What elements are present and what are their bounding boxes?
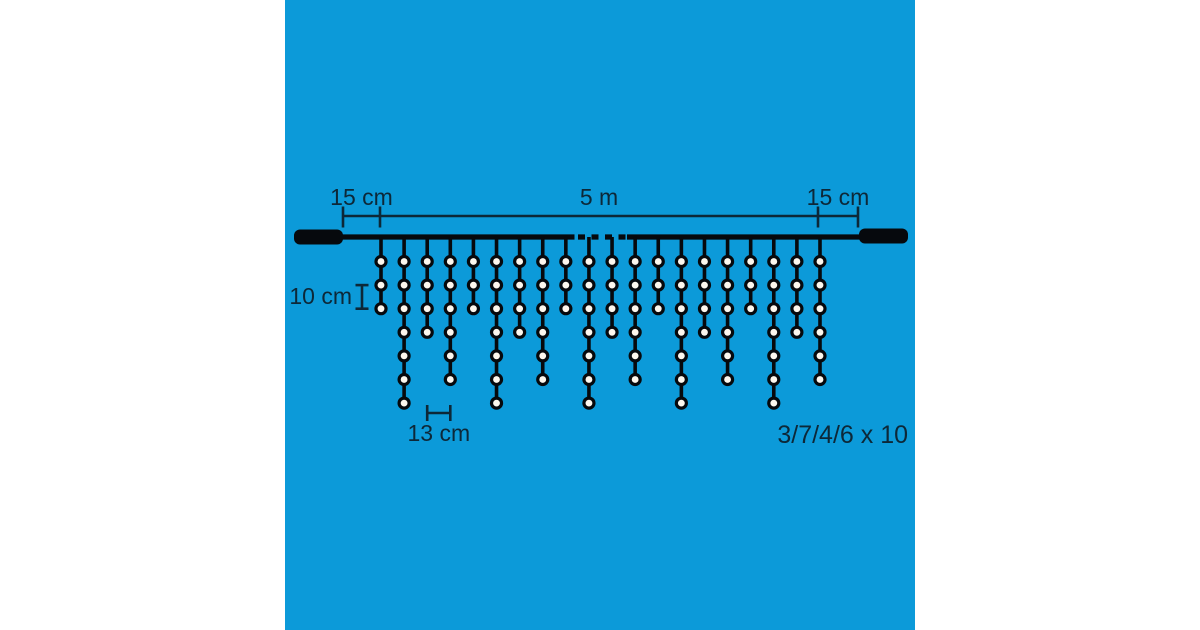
led-bulb-glow [401,282,408,289]
led-bulb-glow [447,282,454,289]
led-bulb-glow [378,258,385,265]
led-bulb-glow [470,258,477,265]
led-bulb-glow [655,282,662,289]
label-drop-spacing: 13 cm [407,420,470,446]
led-bulb-glow [770,282,777,289]
led-bulb-glow [493,305,500,312]
light-drop [675,237,688,410]
led-bulb-glow [470,305,477,312]
led-bulb-glow [817,353,824,360]
led-bulb-glow [493,282,500,289]
led-bulb-glow [586,258,593,265]
light-drop [767,237,780,410]
label-left-margin: 15 cm [330,184,393,210]
led-bulb-glow [793,329,800,336]
led-bulb-glow [632,376,639,383]
led-bulb-glow [678,353,685,360]
led-bulb-glow [586,376,593,383]
led-bulb-glow [817,329,824,336]
led-bulb-glow [516,305,523,312]
led-bulb-glow [562,305,569,312]
led-bulb-glow [447,305,454,312]
bulb-spacing-bracket: 10 cm [289,283,368,309]
led-bulb-glow [793,305,800,312]
led-bulb-glow [539,305,546,312]
led-bulb-glow [747,258,754,265]
led-bulb-glow [817,376,824,383]
led-bulb-glow [539,353,546,360]
led-bulb-glow [401,258,408,265]
led-bulb-glow [516,258,523,265]
light-drop [513,237,526,339]
led-bulb-glow [678,305,685,312]
light-drop [444,237,457,386]
light-drop [698,237,711,339]
diagram-panel: 15 cm 5 m 15 cm 10 cm [285,0,915,630]
led-bulb-glow [424,282,431,289]
led-bulb-glow [562,282,569,289]
led-bulb-glow [378,282,385,289]
led-bulb-glow [447,329,454,336]
right-plug [859,229,908,244]
light-drop [582,237,595,410]
led-bulb-glow [609,329,616,336]
led-bulb-glow [817,305,824,312]
led-bulb-glow [793,258,800,265]
led-bulb-glow [470,282,477,289]
led-bulb-glow [793,282,800,289]
led-bulb-glow [701,305,708,312]
led-bulb-glow [632,329,639,336]
light-drop [467,237,480,315]
led-bulb-glow [724,305,731,312]
led-bulb-glow [539,376,546,383]
led-bulb-glow [770,353,777,360]
led-bulb-glow [770,329,777,336]
led-bulb-glow [701,282,708,289]
icicle-lights-diagram: 15 cm 5 m 15 cm 10 cm [285,0,915,630]
left-plug [294,230,343,245]
led-bulb-glow [817,282,824,289]
page: 15 cm 5 m 15 cm 10 cm [0,0,1200,630]
led-bulb-glow [493,353,500,360]
led-bulb-glow [586,305,593,312]
led-bulb-glow [586,282,593,289]
led-bulb-glow [701,258,708,265]
light-drop [744,237,757,315]
led-bulb-glow [632,353,639,360]
light-drop [398,237,411,410]
light-drop [813,237,826,386]
led-bulb-glow [678,376,685,383]
light-drop [790,237,803,339]
light-drop [421,237,434,339]
led-bulb-glow [424,305,431,312]
cable [294,229,908,245]
light-drop [536,237,549,386]
led-bulb-glow [586,353,593,360]
led-bulb-glow [562,258,569,265]
led-bulb-glow [724,353,731,360]
led-bulb-glow [586,400,593,407]
led-bulb-glow [770,376,777,383]
led-bulb-glow [586,329,593,336]
light-drop [490,237,503,410]
led-bulb-glow [401,376,408,383]
drop-spacing-bracket: 13 cm [407,405,470,446]
led-bulb-glow [424,329,431,336]
label-right-margin: 15 cm [807,184,870,210]
led-bulb-glow [678,329,685,336]
light-drop [605,237,618,339]
led-bulb-glow [539,329,546,336]
led-bulb-glow [632,305,639,312]
led-bulb-glow [655,305,662,312]
led-bulb-glow [539,282,546,289]
led-bulb-glow [724,258,731,265]
led-bulb-glow [378,305,385,312]
led-bulb-glow [655,258,662,265]
led-bulb-glow [447,353,454,360]
light-drop [374,237,387,315]
led-bulb-glow [401,329,408,336]
label-total-length: 5 m [580,184,618,210]
led-bulb-glow [539,258,546,265]
led-bulb-glow [724,376,731,383]
led-bulb-glow [747,305,754,312]
led-bulb-glow [678,258,685,265]
led-bulb-glow [770,258,777,265]
light-drop [559,237,572,315]
light-drop [721,237,734,386]
led-bulb-glow [609,305,616,312]
led-bulb-glow [401,353,408,360]
led-bulb-glow [632,282,639,289]
led-bulb-glow [516,329,523,336]
led-bulb-glow [701,329,708,336]
led-bulb-glow [493,329,500,336]
led-bulb-glow [424,258,431,265]
light-drop [629,237,642,386]
led-bulb-glow [632,258,639,265]
led-bulb-glow [678,282,685,289]
light-drop [652,237,665,315]
label-drop-pattern: 3/7/4/6 x 10 [777,421,908,449]
led-bulb-glow [817,258,824,265]
led-bulb-glow [493,400,500,407]
led-bulb-glow [609,258,616,265]
led-bulb-glow [401,305,408,312]
led-bulb-glow [493,376,500,383]
led-bulb-glow [724,282,731,289]
led-bulb-glow [747,282,754,289]
led-bulb-glow [770,400,777,407]
led-bulb-glow [770,305,777,312]
led-bulb-glow [447,258,454,265]
led-bulb-glow [678,400,685,407]
label-bulb-spacing: 10 cm [289,283,352,309]
led-bulb-glow [447,376,454,383]
led-bulb-glow [401,400,408,407]
led-bulb-glow [609,282,616,289]
span-dimension: 15 cm 5 m 15 cm [330,184,869,228]
led-bulb-glow [724,329,731,336]
led-bulb-glow [493,258,500,265]
led-bulb-glow [516,282,523,289]
drops-group [374,237,826,410]
